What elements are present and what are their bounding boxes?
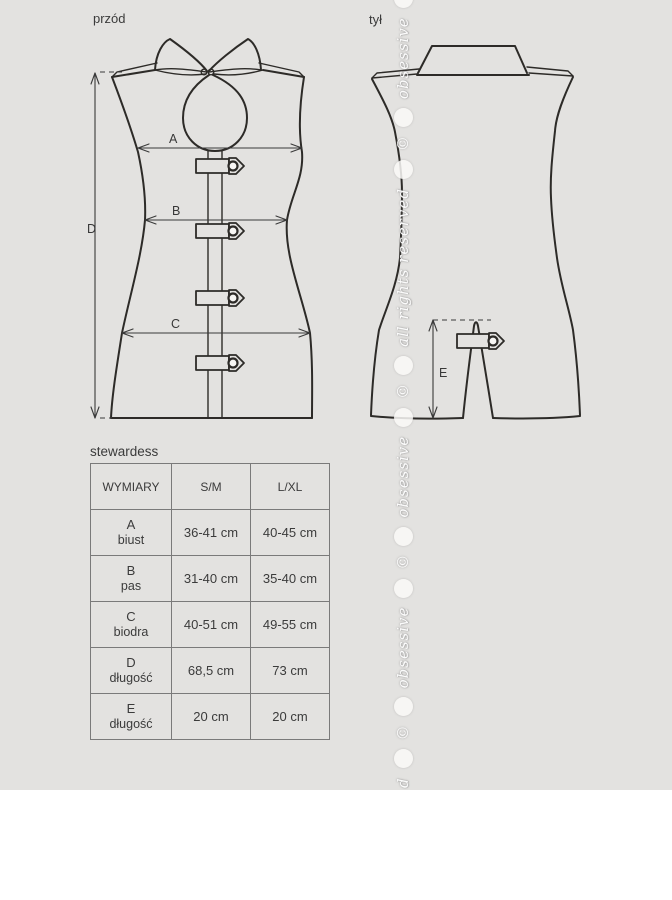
measure-label-a: A [169,132,178,146]
front-view-label: przód [93,11,126,26]
size-table-header-sm: S/M [172,464,251,510]
front-strap-2 [196,223,244,239]
measure-name: biodra [91,625,171,641]
measure-letter: D [91,655,171,671]
measure-letter: C [91,609,171,625]
value-sm: 36-41 cm [172,510,251,556]
measure-label-b: B [172,204,180,218]
back-strap [457,333,504,349]
measure-name: długość [91,717,171,733]
value-sm: 40-51 cm [172,602,251,648]
value-lxl: 40-45 cm [251,510,330,556]
value-sm: 31-40 cm [172,556,251,602]
measure-label-c: C [171,317,180,331]
measure-name-cell: C biodra [91,602,172,648]
front-strap-1 [196,158,244,174]
size-table-row: D długość 68,5 cm 73 cm [91,648,330,694]
value-lxl: 35-40 cm [251,556,330,602]
value-lxl: 49-55 cm [251,602,330,648]
value-lxl: 20 cm [251,694,330,740]
measure-arrow-c [122,329,310,337]
size-table-row: E długość 20 cm 20 cm [91,694,330,740]
keyhole-opening [183,75,247,151]
size-table-row: B pas 31-40 cm 35-40 cm [91,556,330,602]
size-table-header-measurements: WYMIARY [91,464,172,510]
measure-letter: B [91,563,171,579]
measure-label-e: E [439,366,447,380]
size-table: WYMIARY S/M L/XL A biust 36-41 cm 40-45 … [90,463,330,740]
measure-name: długość [91,671,171,687]
back-collar [418,46,527,73]
measure-name-cell: D długość [91,648,172,694]
value-sm: 68,5 cm [172,648,251,694]
size-chart-page: przód tył [0,0,672,900]
measure-label-d: D [87,222,96,236]
back-view-label: tył [369,12,382,27]
front-view-diagram: A B C D [60,30,340,430]
back-view-diagram: E [355,30,600,430]
measure-letter: E [91,701,171,717]
front-placket [208,151,222,418]
size-table-header-lxl: L/XL [251,464,330,510]
left-epaulette [372,69,419,78]
measure-name: pas [91,579,171,595]
measure-name-cell: A biust [91,510,172,556]
measure-name-cell: E długość [91,694,172,740]
front-strap-4 [196,355,244,371]
value-sm: 20 cm [172,694,251,740]
size-table-row: C biodra 40-51 cm 49-55 cm [91,602,330,648]
measure-name: biust [91,533,171,549]
measure-arrow-b [145,216,287,224]
front-strap-3 [196,290,244,306]
product-name: stewardess [90,444,158,459]
back-garment-outline [371,46,580,419]
size-table-header-row: WYMIARY S/M L/XL [91,464,330,510]
measure-letter: A [91,517,171,533]
size-table-row: A biust 36-41 cm 40-45 cm [91,510,330,556]
value-lxl: 73 cm [251,648,330,694]
measure-name-cell: B pas [91,556,172,602]
